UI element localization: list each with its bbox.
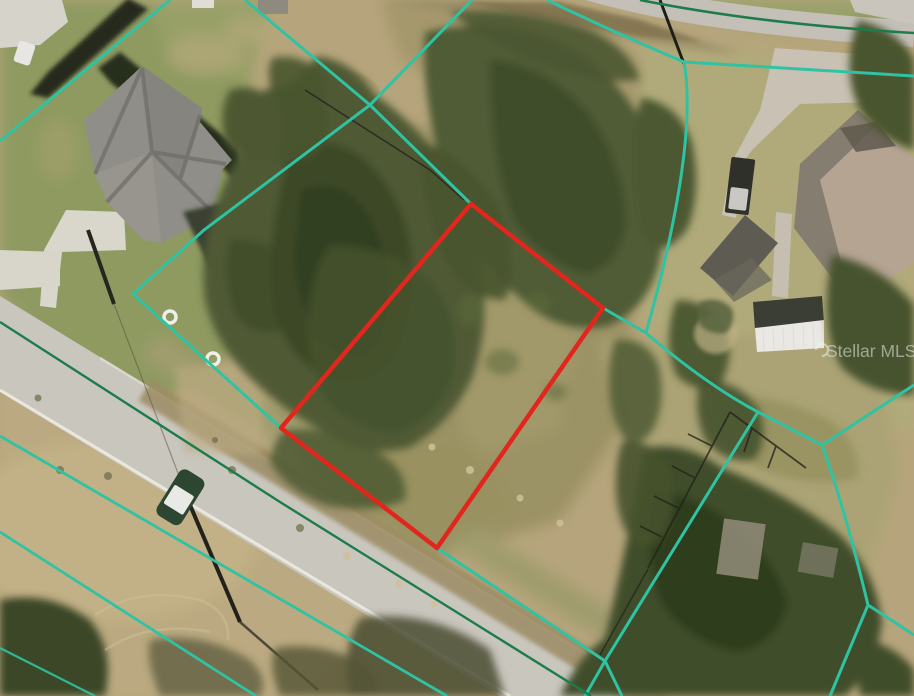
svg-text:Stellar MLS: Stellar MLS <box>826 341 914 361</box>
